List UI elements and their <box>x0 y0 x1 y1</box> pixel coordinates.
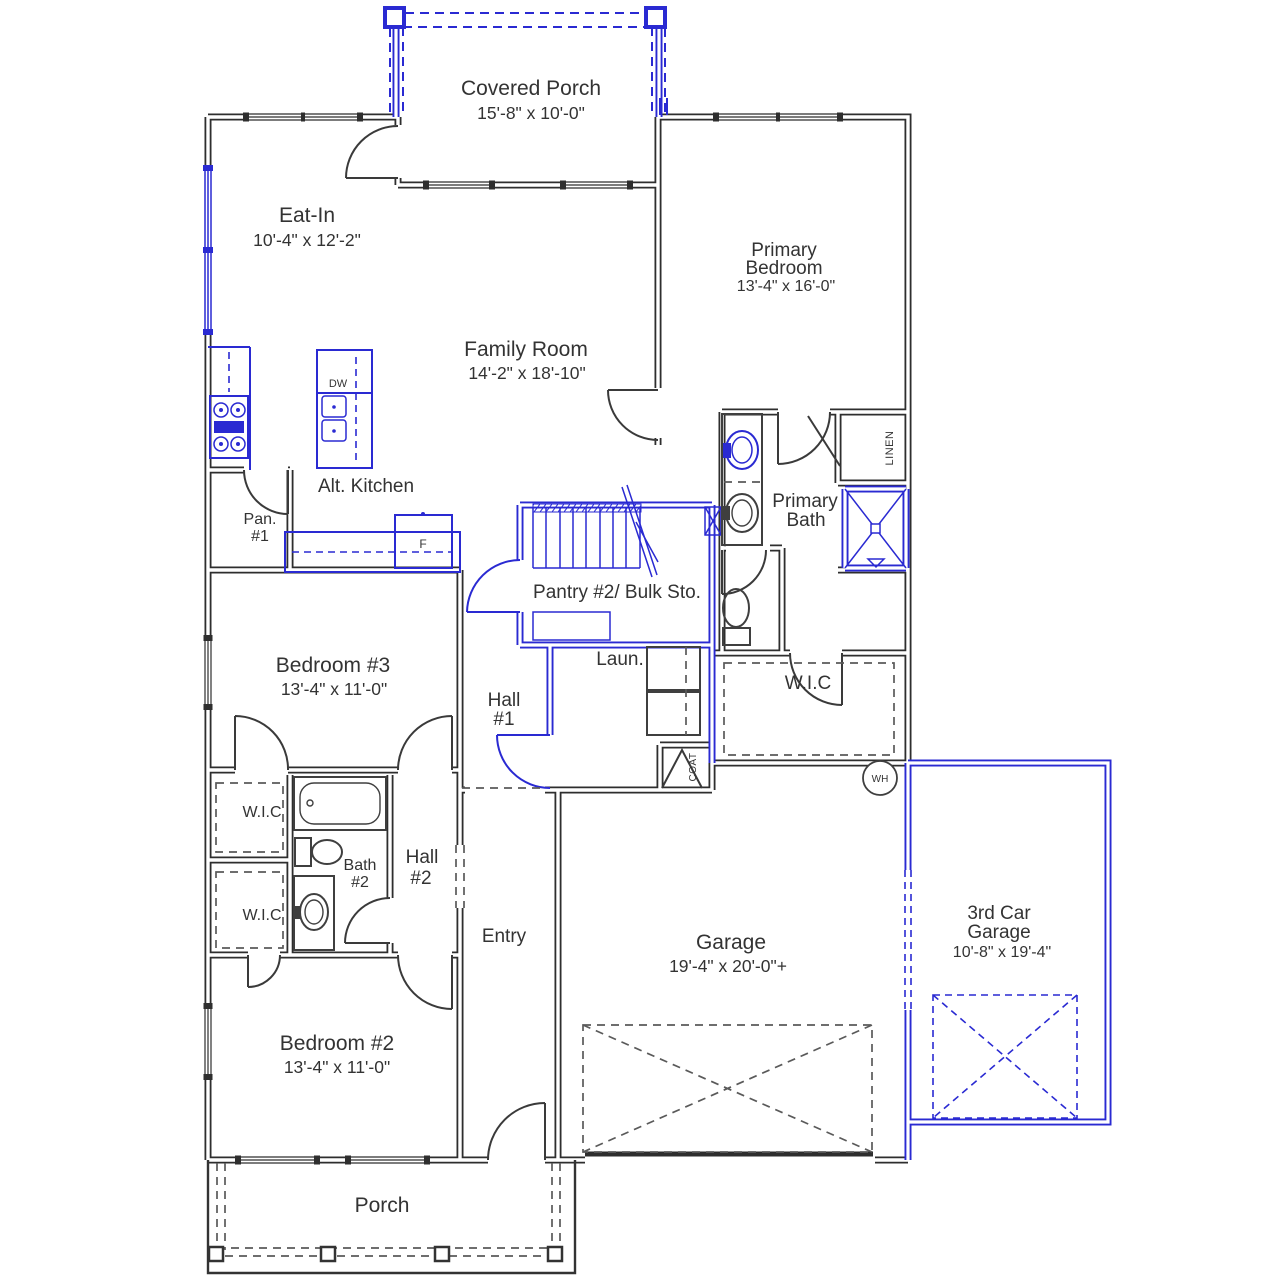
room-label-alt-kitchen: Alt. Kitchen <box>318 476 414 498</box>
optional-blue-walls <box>396 27 1108 1160</box>
room-label-primary-bedroom-2: Bedroom <box>745 258 822 280</box>
coat-label: COAT <box>688 752 699 781</box>
vanity <box>294 876 334 950</box>
room-label-family-room: Family Room <box>464 338 588 362</box>
floorplan-drawing: DW F <box>0 0 1280 1280</box>
room-dims-family-room: 14'-2" x 18'-10" <box>468 363 585 383</box>
room-dims-eat-in: 10'-4" x 12'-2" <box>253 230 361 250</box>
kitchen-island: DW <box>317 350 372 468</box>
room-dims-covered-porch: 15'-8" x 10'-0" <box>477 103 585 123</box>
room-label-primary-bath-2: Bath <box>786 510 825 532</box>
room-label-bath2-2: #2 <box>351 874 369 892</box>
room-dims-primary-bedroom: 13'-4" x 16'-0" <box>737 278 835 296</box>
room-label-laundry: Laun. <box>596 649 644 671</box>
porch-post <box>321 1247 335 1261</box>
toilet <box>295 838 342 866</box>
porch-post <box>209 1247 223 1261</box>
room-label-wic2: W.I.C <box>242 907 281 925</box>
room-dims-bedroom2: 13'-4" x 11'-0" <box>284 1057 390 1077</box>
porch-post <box>548 1247 562 1261</box>
floor-plan-canvas: DW F <box>0 0 1280 1280</box>
water-heater-label: WH <box>872 774 889 785</box>
porch-post <box>385 8 404 27</box>
room-dims-third-garage: 10'-8" x 19'-4" <box>953 944 1051 962</box>
linen-label: LINEN <box>884 431 896 466</box>
eat-in-blue-window <box>202 165 213 335</box>
room-dims-bedroom3: 13'-4" x 11'-0" <box>281 679 387 699</box>
room-label-porch: Porch <box>355 1194 410 1218</box>
room-label-third-garage-2: Garage <box>967 922 1030 944</box>
room-label-pantry1-2: #1 <box>251 528 269 546</box>
base-counter <box>285 532 460 572</box>
shower <box>845 489 906 568</box>
room-label-bedroom3: Bedroom #3 <box>276 654 390 678</box>
room-label-bath2-1: Bath <box>344 857 377 875</box>
room-label-hall2-1: Hall <box>406 847 439 869</box>
tub <box>294 777 386 830</box>
room-label-bedroom2: Bedroom #2 <box>280 1032 394 1056</box>
room-label-hall2-2: #2 <box>410 868 431 890</box>
fridge-label: F <box>419 537 426 551</box>
toilet <box>723 589 750 645</box>
room-label-hall1-2: #1 <box>493 709 514 731</box>
room-label-pantry2: Pantry #2/ Bulk Sto. <box>533 582 701 604</box>
pantry-shelf <box>533 612 610 640</box>
fridge: F <box>395 512 452 568</box>
room-label-eat-in: Eat-In <box>279 204 335 228</box>
porch-post <box>646 8 665 27</box>
room-label-primary-wic: W.I.C <box>785 673 831 695</box>
garage-cross <box>583 1025 872 1152</box>
washer-dryer <box>647 647 700 735</box>
water-heater: WH <box>863 761 897 795</box>
room-dims-garage: 19'-4" x 20'-0"+ <box>669 956 787 976</box>
room-label-entry: Entry <box>482 926 526 948</box>
alt-kitchen-fixtures: DW F <box>208 347 460 572</box>
dishwasher-label: DW <box>329 378 348 390</box>
porch-post <box>435 1247 449 1261</box>
room-label-covered-porch: Covered Porch <box>461 77 601 101</box>
room-label-garage: Garage <box>696 931 766 955</box>
room-label-pantry1-1: Pan. <box>244 511 277 529</box>
room-label-wic1: W.I.C <box>242 804 281 822</box>
